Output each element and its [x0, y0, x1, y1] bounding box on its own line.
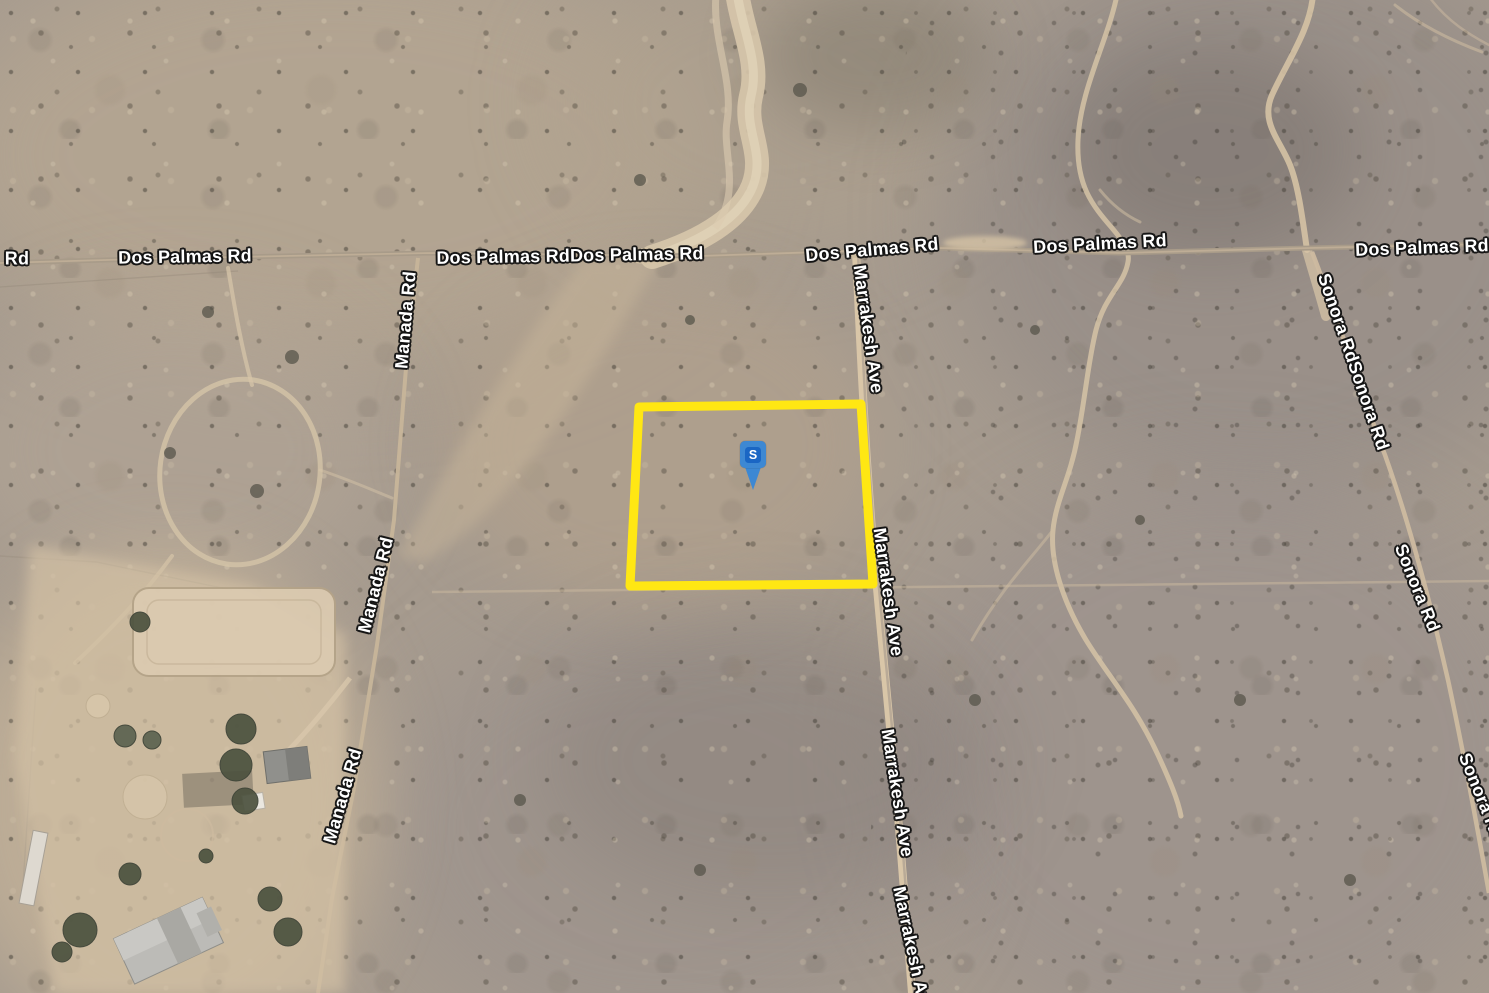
map-pin-tail — [745, 467, 761, 490]
dry-wash-topright — [1268, 0, 1489, 316]
wash-plume — [398, 258, 660, 562]
map-pin-head: S — [740, 441, 766, 468]
round-pen — [123, 775, 167, 819]
road-sonora — [1312, 252, 1489, 893]
dry-wash-top — [620, 0, 757, 264]
round-pen — [86, 694, 110, 718]
map-pin-badge: S — [745, 447, 761, 463]
parcel-outline[interactable] — [630, 404, 873, 586]
map-pin[interactable]: S — [740, 441, 766, 490]
faint-trail-horizontal — [432, 581, 1489, 592]
road-marrakesh — [844, 248, 914, 993]
satellite-map-canvas[interactable]: RdDos Palmas RdDos Palmas RdDos Palmas R… — [0, 0, 1489, 993]
map-feature-layer — [0, 0, 1489, 993]
road-dos-palmas — [0, 236, 1489, 263]
farm-area — [15, 545, 350, 993]
horse-arena — [133, 588, 335, 676]
dry-wash-right — [972, 0, 1181, 816]
